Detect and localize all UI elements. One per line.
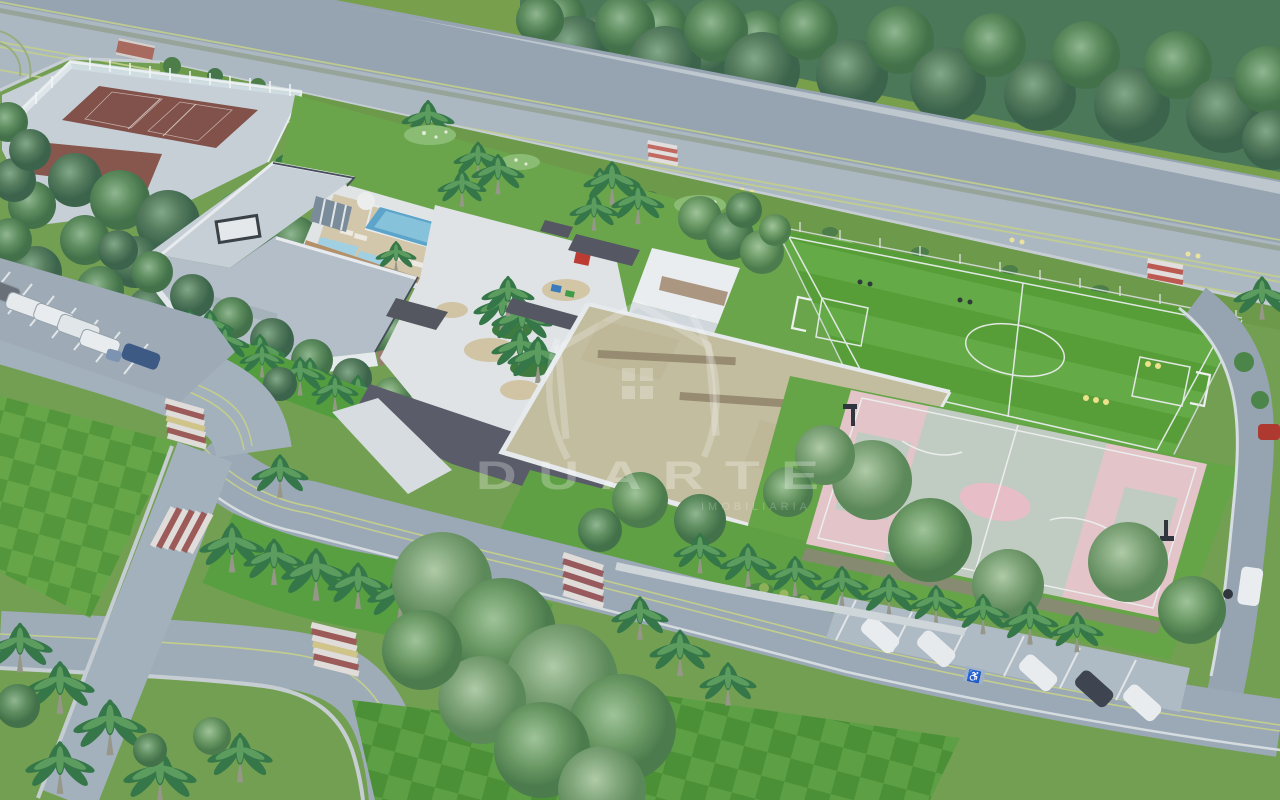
svg-text:DUARTE: DUARTE: [476, 454, 840, 498]
svg-text:IMOBILIARIA: IMOBILIARIA: [701, 501, 811, 513]
